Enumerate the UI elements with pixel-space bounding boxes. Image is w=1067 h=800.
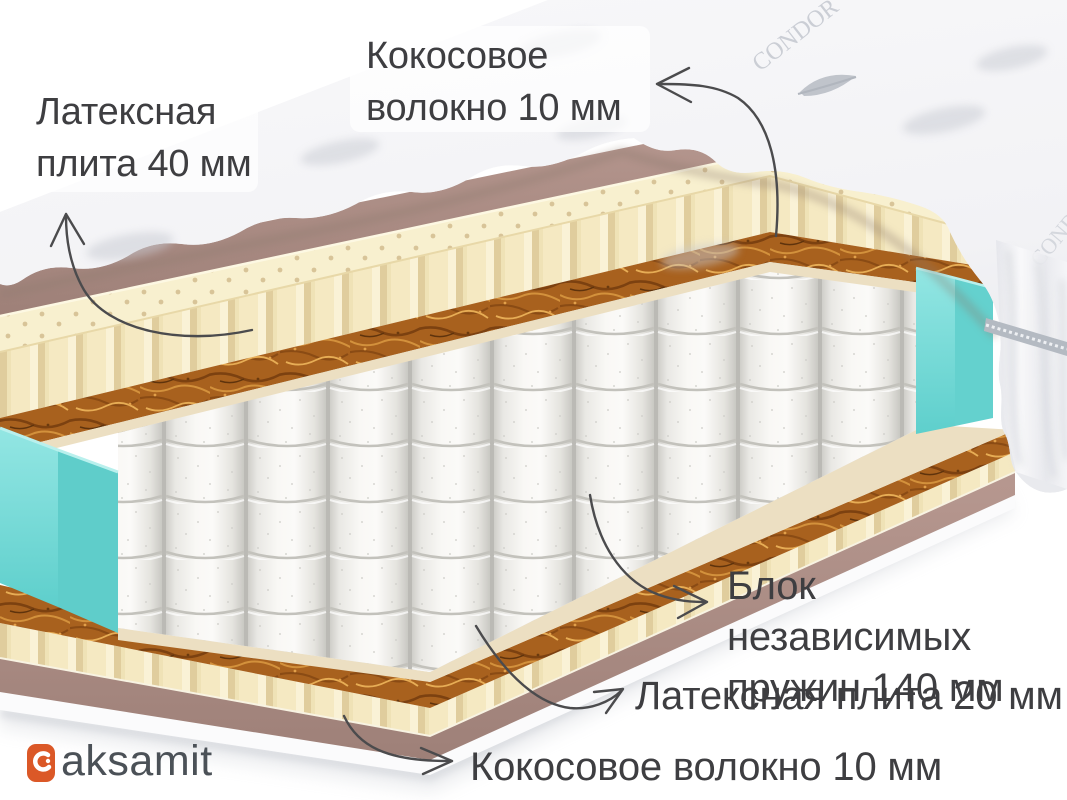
product-diagram: CONDOR CONDOR (0, 0, 1067, 800)
label-coconut-fiber-top-line2: волокно 10 мм (366, 82, 650, 134)
label-coconut-fiber-top-line1: Кокосовое (366, 30, 650, 82)
label-latex-plate-40mm-line2: плита 40 мм (36, 138, 258, 190)
brand-logo-icon (26, 741, 56, 783)
label-latex-plate-20mm: Латексная плита 20 мм (635, 670, 1063, 722)
label-latex-plate-40mm-line1: Латексная (36, 86, 258, 138)
label-coconut-fiber-top: Кокосовое волокно 10 мм (350, 26, 650, 132)
brand-logo-text: aksamit (61, 740, 213, 783)
label-spring-block-line1: Блок независимых (727, 561, 1067, 663)
brand-logo: aksamit (26, 740, 213, 783)
label-latex-plate-40mm: Латексная плита 40 мм (18, 80, 258, 192)
label-coconut-fiber-bottom: Кокосовое волокно 10 мм (470, 741, 942, 793)
